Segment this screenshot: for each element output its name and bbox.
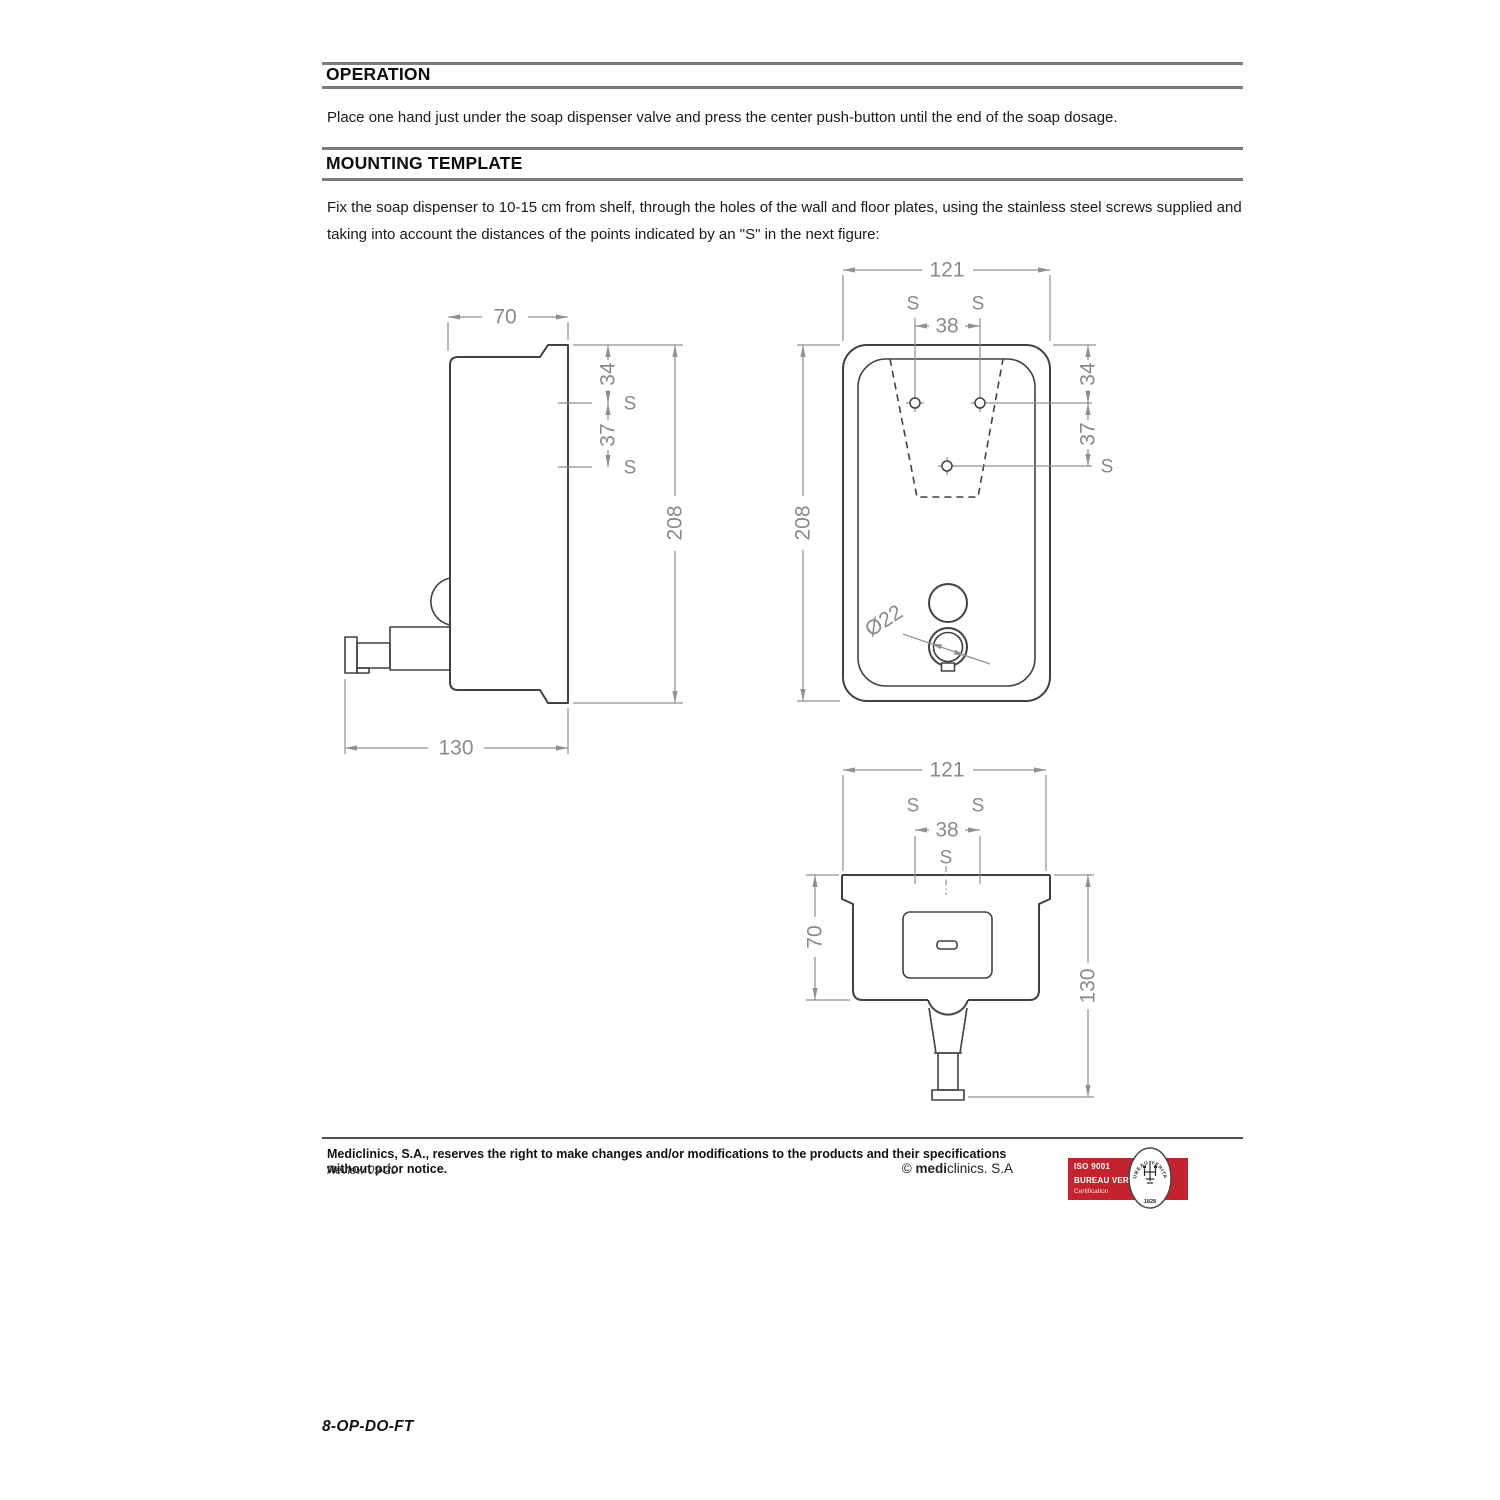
screw-mark: S <box>972 294 985 315</box>
bureau-veritas-badge: ISO 9001 BUREAU VERITAS Certification BU… <box>1068 1158 1188 1200</box>
screw-mark: S <box>1101 457 1114 478</box>
dim-top-to-hole: 34 <box>1077 362 1100 386</box>
front-view: 121 38 208 34 37 Ø22 S S S <box>792 259 1114 702</box>
screw-mark: S <box>907 796 920 817</box>
dim-total-depth: 130 <box>438 737 473 760</box>
dim-width: 70 <box>493 306 516 329</box>
bureau-veritas-seal-icon: BUREAU VERITAS 1828 <box>1128 1147 1172 1209</box>
dim-hole-gap: 38 <box>935 315 958 338</box>
dim-valve-diameter: Ø22 <box>861 601 907 642</box>
side-view: 70 34 37 208 130 S S <box>345 306 687 760</box>
dim-height: 208 <box>664 505 687 540</box>
copyright-brand-bold: medi <box>915 1161 947 1176</box>
copyright-brand-rest: clinics. S.A <box>947 1161 1013 1176</box>
footer-copyright: © mediclinics. S.A <box>600 1161 1013 1176</box>
footer-divider <box>322 1137 1243 1139</box>
dim-hole-gap: 38 <box>935 819 958 842</box>
screw-mark: S <box>972 796 985 817</box>
document-code: 8-OP-DO-FT <box>322 1418 414 1436</box>
iso-9001-label: ISO 9001 <box>1074 1162 1110 1171</box>
screw-mark: S <box>907 294 920 315</box>
dim-top-to-hole: 34 <box>597 362 620 386</box>
screw-mark: S <box>624 394 637 415</box>
dim-hole-pitch: 37 <box>1077 422 1100 445</box>
dim-width: 121 <box>929 759 964 782</box>
dim-height: 208 <box>792 505 815 540</box>
dim-hole-pitch: 37 <box>597 423 620 446</box>
datasheet-page: OPERATION Place one hand just under the … <box>0 0 1500 1500</box>
certification-label: Certification <box>1074 1188 1108 1195</box>
copyright-symbol: © <box>902 1161 916 1176</box>
seal-year: 1828 <box>1144 1199 1156 1205</box>
screw-mark: S <box>624 458 637 479</box>
mounting-diagram: 70 34 37 208 130 S S <box>0 0 1500 1500</box>
footer-review: Review 09-20 <box>327 1165 397 1177</box>
screw-mark: S <box>940 848 953 869</box>
dim-total-depth: 130 <box>1077 968 1100 1003</box>
top-view: 121 38 70 130 S S S <box>804 759 1100 1101</box>
dim-width: 121 <box>929 259 964 282</box>
dim-body-depth: 70 <box>804 925 827 948</box>
